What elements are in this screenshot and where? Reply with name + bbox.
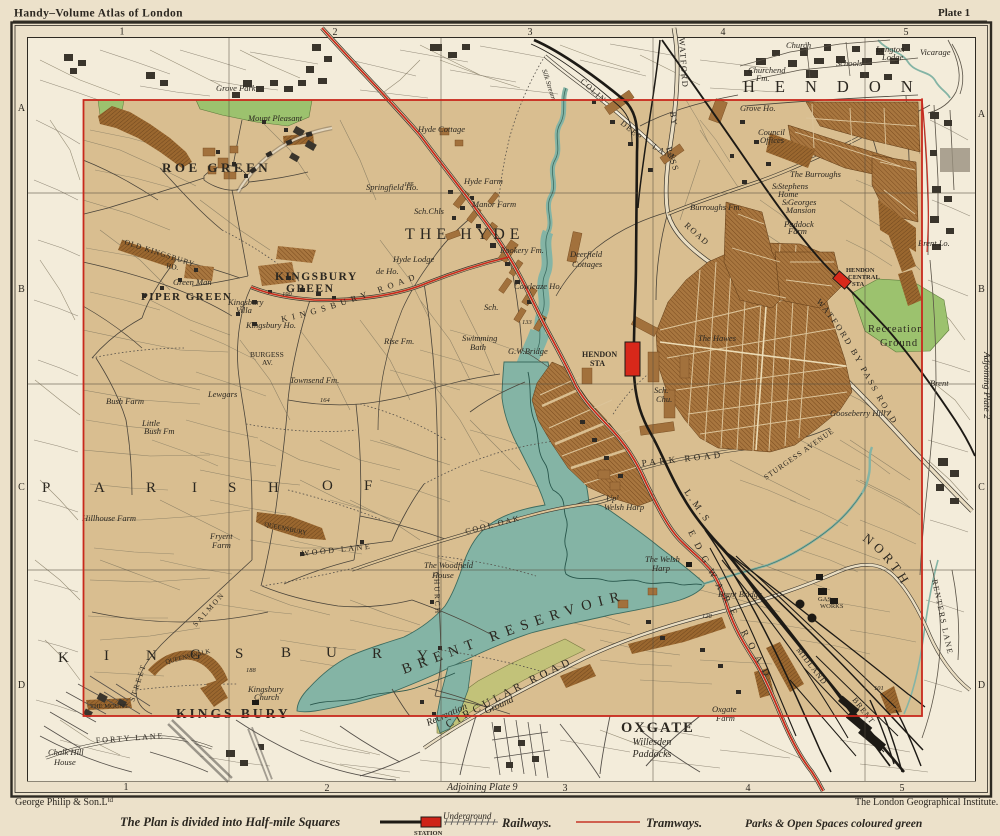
svg-text:Manor Farm: Manor Farm <box>471 199 516 209</box>
svg-text:3: 3 <box>528 27 533 38</box>
svg-text:Adjoining Plate 2: Adjoining Plate 2 <box>981 351 991 419</box>
svg-text:101: 101 <box>874 685 884 692</box>
svg-text:S: S <box>235 646 243 662</box>
svg-text:George Philip & Son.Ltd: George Philip & Son.Ltd <box>15 796 114 808</box>
svg-text:Cottages: Cottages <box>572 259 603 269</box>
svg-text:5: 5 <box>900 783 905 794</box>
svg-text:4: 4 <box>721 27 726 38</box>
svg-text:Hillhouse Farm: Hillhouse Farm <box>81 513 136 523</box>
svg-text:Grove Park: Grove Park <box>216 83 256 93</box>
svg-text:KINGSBURY: KINGSBURY <box>275 271 358 283</box>
svg-text:G.W.Bridge: G.W.Bridge <box>508 346 548 356</box>
svg-text:THE MOUNT: THE MOUNT <box>90 703 128 710</box>
svg-text:188: 188 <box>246 667 257 674</box>
svg-text:3: 3 <box>563 783 568 794</box>
svg-text:Farm: Farm <box>211 540 231 550</box>
svg-text:F: F <box>364 478 372 494</box>
svg-text:185: 185 <box>404 181 415 188</box>
svg-text:Ground: Ground <box>880 338 918 349</box>
svg-text:GREEN: GREEN <box>286 283 334 295</box>
svg-text:STA: STA <box>852 281 864 288</box>
svg-text:HENDON: HENDON <box>582 350 617 359</box>
svg-text:Hyde Lodge: Hyde Lodge <box>392 254 435 264</box>
svg-text:Gooseberry Hill: Gooseberry Hill <box>830 408 886 418</box>
svg-text:I: I <box>104 648 109 664</box>
svg-text:Lewgars: Lewgars <box>207 389 238 399</box>
svg-text:R: R <box>146 480 156 496</box>
svg-text:STA: STA <box>590 359 605 368</box>
svg-text:Railways.: Railways. <box>501 816 552 830</box>
svg-text:Mount Pleasant: Mount Pleasant <box>247 113 303 123</box>
svg-text:Willesden: Willesden <box>633 737 672 748</box>
svg-text:Bush Fm: Bush Fm <box>144 426 174 436</box>
svg-text:133: 133 <box>522 319 533 326</box>
svg-text:GAS: GAS <box>818 596 831 603</box>
svg-text:1: 1 <box>120 27 125 38</box>
svg-text:The London Geographical Instit: The London Geographical Institute. <box>855 797 998 808</box>
svg-text:KINGS BURY: KINGS BURY <box>176 706 291 721</box>
svg-text:B: B <box>18 284 25 295</box>
svg-text:de Ho.: de Ho. <box>376 266 399 276</box>
svg-text:The Woodfield: The Woodfield <box>424 560 474 570</box>
svg-text:Underground: Underground <box>443 811 492 821</box>
svg-text:Green Man: Green Man <box>173 277 212 287</box>
svg-text:The Hawes: The Hawes <box>698 333 737 343</box>
svg-text:Church: Church <box>786 40 811 50</box>
svg-text:A: A <box>18 103 26 114</box>
svg-text:5: 5 <box>904 27 909 38</box>
svg-text:House: House <box>431 570 454 580</box>
svg-text:Farm: Farm <box>715 713 735 723</box>
svg-text:ROE GREEN: ROE GREEN <box>162 160 271 175</box>
svg-text:Offices: Offices <box>760 135 785 145</box>
svg-text:Townsend Fm.: Townsend Fm. <box>290 375 339 385</box>
svg-text:Farm: Farm <box>787 226 807 236</box>
svg-text:K: K <box>58 650 69 666</box>
svg-text:190: 190 <box>282 291 293 298</box>
svg-text:S: S <box>228 480 236 496</box>
svg-text:2: 2 <box>325 783 330 794</box>
svg-text:Harp: Harp <box>651 563 670 573</box>
svg-text:164: 164 <box>320 397 331 404</box>
svg-text:Villa: Villa <box>236 305 252 315</box>
svg-text:Fm.: Fm. <box>755 73 769 83</box>
svg-text:Recreation: Recreation <box>868 324 923 335</box>
svg-text:1: 1 <box>124 782 129 793</box>
svg-text:P: P <box>42 480 50 496</box>
svg-text:Lodge: Lodge <box>881 52 903 62</box>
svg-text:CENTRAL: CENTRAL <box>848 274 880 281</box>
svg-text:Grove Ho.: Grove Ho. <box>740 103 776 113</box>
svg-text:O: O <box>322 478 333 494</box>
svg-text:Kingsbury Ho.: Kingsbury Ho. <box>245 320 296 330</box>
svg-text:Parks & Open Spaces coloured g: Parks & Open Spaces coloured green <box>745 818 922 830</box>
svg-text:Tramways.: Tramways. <box>646 816 702 830</box>
svg-text:Brent: Brent <box>930 378 949 388</box>
svg-text:H: H <box>268 480 279 496</box>
svg-text:The Plan is divided into Half-: The Plan is divided into Half-mile Squar… <box>120 815 340 829</box>
svg-text:Chalk Hill: Chalk Hill <box>48 747 84 757</box>
svg-text:4: 4 <box>746 783 751 794</box>
svg-text:128: 128 <box>702 613 713 620</box>
svg-text:OXGATE: OXGATE <box>621 720 695 736</box>
svg-text:D: D <box>978 680 985 691</box>
svg-text:Paddocks: Paddocks <box>632 749 672 760</box>
svg-text:A: A <box>94 480 105 496</box>
svg-text:D: D <box>18 680 25 691</box>
svg-text:Burroughs Fm.: Burroughs Fm. <box>690 202 742 212</box>
svg-text:I: I <box>192 480 197 496</box>
svg-text:Adjoining Plate 9: Adjoining Plate 9 <box>446 782 518 793</box>
svg-text:Bush Farm: Bush Farm <box>106 396 144 406</box>
svg-text:Brent Bridge: Brent Bridge <box>718 589 762 599</box>
svg-text:2: 2 <box>333 27 338 38</box>
svg-text:The Burroughs: The Burroughs <box>790 169 842 179</box>
svg-text:B: B <box>978 284 985 295</box>
svg-text:A: A <box>978 109 986 120</box>
svg-text:WORKS: WORKS <box>820 603 844 610</box>
svg-text:C: C <box>978 482 985 493</box>
svg-text:Rise Fm.: Rise Fm. <box>383 336 414 346</box>
svg-text:Chu.: Chu. <box>656 394 672 404</box>
svg-text:Cowleaze Ho.: Cowleaze Ho. <box>514 281 562 291</box>
svg-text:Schools: Schools <box>836 58 863 68</box>
svg-text:HENDON: HENDON <box>743 77 933 96</box>
svg-text:Sch.: Sch. <box>484 302 498 312</box>
svg-text:Deerfield: Deerfield <box>569 249 603 259</box>
svg-text:Handy–Volume Atlas of London: Handy–Volume Atlas of London <box>14 8 183 20</box>
svg-text:HENDON: HENDON <box>846 267 875 274</box>
svg-text:Hyde Farm: Hyde Farm <box>463 176 503 186</box>
svg-text:U: U <box>326 645 337 661</box>
svg-text:AV.: AV. <box>262 358 273 367</box>
svg-text:Bath: Bath <box>470 342 486 352</box>
svg-text:Vicarage: Vicarage <box>920 47 951 57</box>
svg-text:PIPER GREEN: PIPER GREEN <box>141 291 232 303</box>
svg-text:N: N <box>146 648 157 664</box>
svg-text:House: House <box>53 757 76 767</box>
svg-text:Mansion: Mansion <box>785 205 816 215</box>
svg-text:Plate 1: Plate 1 <box>938 7 970 19</box>
svg-text:B: B <box>281 645 291 661</box>
svg-text:R: R <box>372 646 382 662</box>
svg-text:Hyde Cottage: Hyde Cottage <box>417 124 465 134</box>
svg-text:Sch.Chls: Sch.Chls <box>414 206 445 216</box>
svg-text:Y: Y <box>417 648 428 664</box>
svg-text:STATION: STATION <box>414 830 443 836</box>
svg-text:Welsh Harp: Welsh Harp <box>604 502 644 512</box>
svg-text:Rookery Fm.: Rookery Fm. <box>499 245 544 255</box>
svg-text:C: C <box>18 482 25 493</box>
svg-text:THE HYDE: THE HYDE <box>405 226 525 243</box>
svg-text:BY: BY <box>668 111 680 127</box>
